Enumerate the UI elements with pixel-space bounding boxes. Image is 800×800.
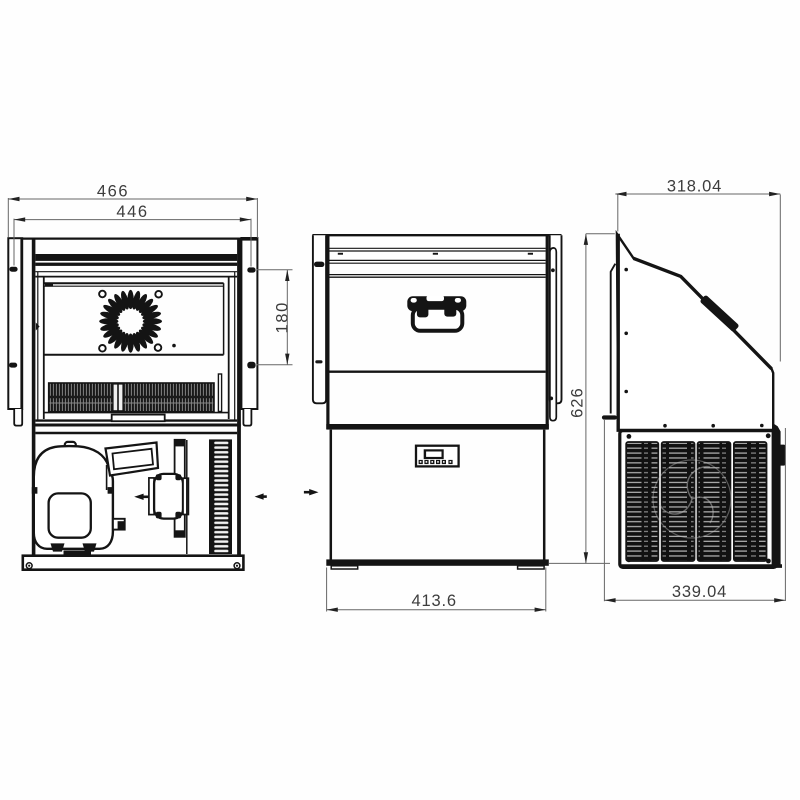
svg-text:413.6: 413.6 <box>412 592 457 610</box>
svg-text:318.04: 318.04 <box>667 178 722 196</box>
svg-text:339.04: 339.04 <box>672 583 727 601</box>
svg-text:626: 626 <box>568 387 586 418</box>
svg-text:466: 466 <box>97 182 129 200</box>
svg-text:180: 180 <box>274 301 292 333</box>
svg-text:446: 446 <box>116 203 148 221</box>
